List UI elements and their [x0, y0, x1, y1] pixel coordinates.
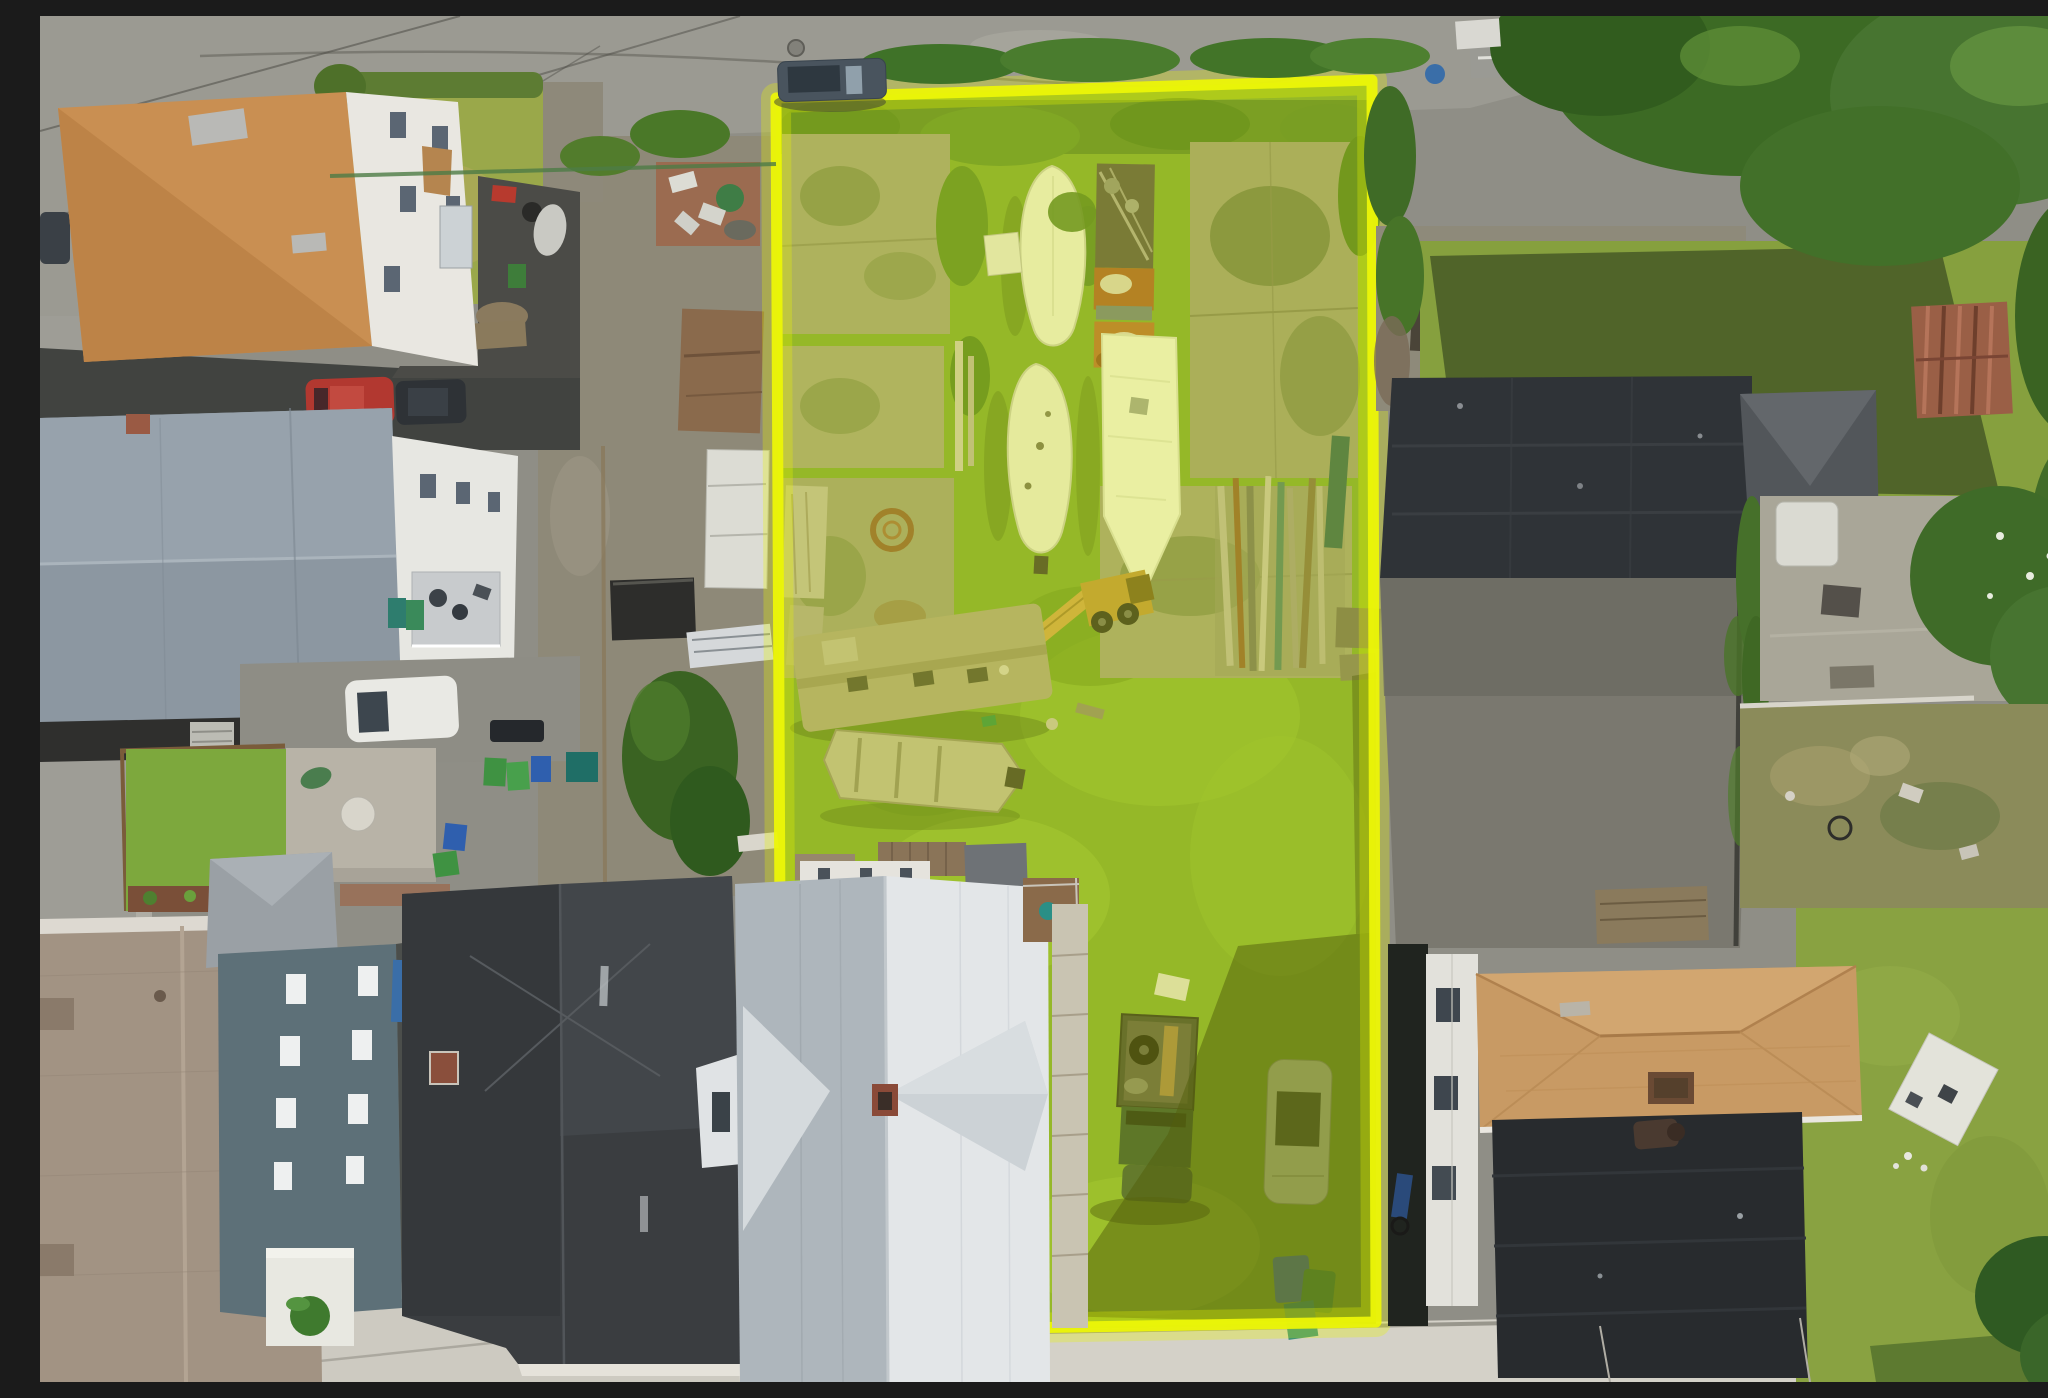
charcoal-chimney [430, 1052, 458, 1084]
green-bin-1 [483, 757, 506, 786]
road-hedge-5 [630, 110, 730, 158]
gray-roof-upper-plane [40, 408, 396, 564]
orange-roof-vent-2 [291, 233, 326, 254]
teal-bin-2 [406, 600, 424, 630]
skylight-1 [599, 966, 608, 1006]
db-seam-h2 [1392, 512, 1752, 514]
dormer-window [712, 1092, 730, 1132]
black-car-small [490, 720, 544, 742]
bh-window-8 [346, 1156, 364, 1184]
hedge-right-2 [1376, 216, 1424, 336]
parking-shade [1380, 578, 1752, 696]
green-bin-3 [432, 850, 459, 877]
blue-bin-1 [531, 756, 551, 782]
stair-line-2 [192, 741, 232, 742]
brick-chimney [126, 414, 150, 434]
pallet-stairs [1595, 886, 1709, 944]
db-speck-2 [1577, 483, 1583, 489]
bh-window-7 [274, 1162, 292, 1190]
bh-window-5 [276, 1098, 296, 1128]
van-windshield [846, 66, 863, 95]
blossom-1 [1996, 532, 2004, 540]
db-speck-3 [1698, 434, 1703, 439]
se-db-dot-1 [1737, 1213, 1743, 1219]
road-hedge-4 [1310, 38, 1430, 74]
bh-window-2 [358, 966, 378, 996]
porch-palm-frond [286, 1297, 310, 1311]
panel-dot-3 [1893, 1163, 1899, 1169]
gable-window-3 [488, 492, 500, 512]
vent-elbow-cap [1667, 1123, 1685, 1141]
apt-window-1 [1436, 988, 1460, 1022]
stair-line-1 [192, 731, 232, 732]
patio-clutter [724, 220, 756, 240]
bed-plant-1 [143, 891, 157, 905]
apt-window-2 [1434, 1076, 1458, 1110]
hedge-right-1 [1364, 86, 1416, 226]
layer-west-house [40, 408, 580, 764]
panel-dot-1 [1904, 1152, 1912, 1160]
white-tub [1776, 502, 1838, 566]
bed-plant-2 [184, 890, 196, 902]
drv-red-item [491, 185, 516, 203]
bh-window-4 [352, 1030, 372, 1060]
center-chimney-core [878, 1092, 892, 1110]
wall-window-5 [384, 266, 400, 292]
teal-bin-1 [388, 598, 406, 628]
mid-tree-highlight [630, 681, 690, 761]
blossom-2 [2026, 572, 2034, 580]
deck-chair-1 [429, 589, 447, 607]
blue-bin-2 [443, 823, 468, 851]
patio-grid-item [1821, 584, 1861, 617]
taupe-vent [154, 990, 166, 1002]
wall-window-3 [400, 186, 416, 212]
balcony [440, 206, 472, 268]
blossom-3 [1987, 593, 1993, 599]
road-hedge-2 [1000, 38, 1180, 82]
plot-patch-2 [1880, 782, 2000, 850]
manhole-cover [788, 40, 804, 56]
plot-debris-3 [1785, 791, 1795, 801]
patio-steps [1830, 665, 1875, 689]
alley-shadow-east [1388, 944, 1428, 1326]
panel-dot-2 [1921, 1165, 1928, 1172]
big-tree-4 [1740, 106, 2020, 266]
bh-window-6 [348, 1094, 368, 1124]
black-shed [610, 578, 696, 641]
van-windows [788, 65, 841, 93]
deck-chair-2 [452, 604, 468, 620]
aerial-photo [40, 16, 2048, 1382]
plot-patch-3 [1850, 736, 1910, 776]
se-db-dot-2 [1598, 1274, 1603, 1279]
taupe-chimney-1 [40, 998, 74, 1030]
fence-mid-vertical [603, 446, 605, 884]
dark-van-roof [408, 388, 448, 416]
parked-car-left-road [40, 212, 70, 264]
gable-window-2 [456, 482, 470, 504]
layer-center-house [735, 842, 1088, 1382]
mid-tree-2 [670, 766, 750, 876]
tan-roof-vent [1560, 1001, 1591, 1017]
mid-dirt-patch [550, 456, 610, 576]
bh-window-1 [286, 974, 306, 1004]
stone-walkway [1052, 904, 1088, 1328]
white-vehicle-top [1455, 18, 1501, 49]
bh-window-3 [280, 1036, 300, 1066]
wall-window-1 [390, 112, 406, 138]
drv-green-bin [508, 264, 526, 288]
brown-shed [678, 309, 764, 434]
charcoal-left-plane [402, 884, 560, 1316]
dark-building [1380, 376, 1752, 578]
tree-highlight-1 [1680, 26, 1800, 86]
green-bin-2 [506, 761, 530, 790]
gable-window-1 [420, 474, 436, 498]
white-shed [705, 449, 769, 588]
db-speck-1 [1457, 403, 1463, 409]
skylight-2 [640, 1196, 648, 1232]
bh-porch-rail [266, 1248, 354, 1258]
round-table [341, 797, 375, 831]
patio-table [716, 184, 744, 212]
taupe-chimney-2 [40, 1244, 74, 1276]
blue-tarp-dot [1425, 64, 1445, 84]
tan-chimney-top [1654, 1078, 1688, 1098]
aerial-lot-photo [40, 16, 2048, 1382]
white-suv-glass [357, 691, 389, 733]
teal-bin-large [566, 752, 598, 782]
db-seam-h1 [1392, 444, 1752, 446]
